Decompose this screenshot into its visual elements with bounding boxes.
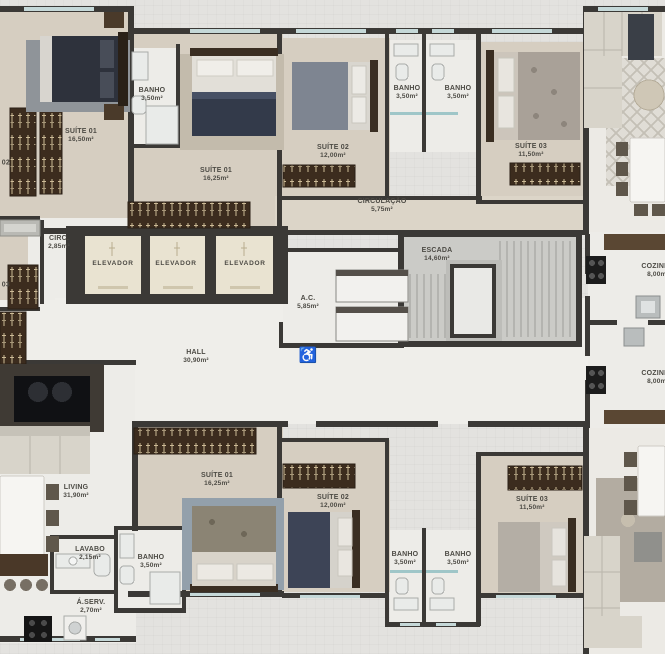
room-label-elevador-3: ELEVADOR [224, 260, 265, 268]
room-label-banho-bottom-left: BANHO3,50m² [138, 553, 165, 571]
floor-plan: SUÍTE 0116,50m²BANHO3,50m²SUÍTE 0116,25m… [0, 0, 665, 654]
room-label-suite-02-top-mid: SUÍTE 0212,00m² [317, 143, 349, 161]
room-label-area-servico: Á.SERV.2,70m² [77, 598, 106, 616]
room-label-living: LIVING31,90m² [63, 483, 89, 501]
room-label-banho-bottom-2: BANHO3,50m² [445, 550, 472, 568]
room-labels-layer: SUÍTE 0116,50m²BANHO3,50m²SUÍTE 0116,25m… [0, 0, 665, 654]
room-label-escada: ESCADA14,60m² [422, 246, 453, 264]
room-label-suite-02-left-edge: SUÍTE 02 [0, 158, 10, 167]
room-label-cozinha-2: COZINHA8,00m² [641, 369, 665, 387]
room-label-elevador-1: ELEVADOR [92, 260, 133, 268]
room-label-circ: CIRC.2,85m² [48, 234, 70, 252]
room-label-ac: A.C.5,85m² [297, 294, 319, 312]
room-label-banho-top-1: BANHO3,50m² [394, 84, 421, 102]
room-label-suite-01-top-left: SUÍTE 0116,50m² [65, 127, 97, 145]
room-label-elevador-2: ELEVADOR [155, 260, 196, 268]
room-label-cozinha-1: COZINHA8,00m² [641, 262, 665, 280]
room-label-suite-02-bottom: SUÍTE 0212,00m² [317, 493, 349, 511]
room-label-circulacao: CIRCULAÇÃO5,75m² [357, 197, 406, 215]
room-label-lavabo: LAVABO2,15m² [75, 545, 105, 563]
room-label-banho-bottom-1: BANHO3,50m² [392, 550, 419, 568]
room-label-banho-top-left: BANHO3,50m² [139, 86, 166, 104]
room-label-suite-03-bottom: SUÍTE 0311,50m² [516, 495, 548, 513]
room-label-suite-03-left-edge: SUÍTE 03 [0, 280, 10, 289]
room-label-suite-01-top-mid: SUÍTE 0116,25m² [200, 166, 232, 184]
room-label-banho-top-2: BANHO3,50m² [445, 84, 472, 102]
room-label-suite-03-top: SUÍTE 0311,50m² [515, 142, 547, 160]
room-label-hall: HALL30,90m² [183, 348, 209, 366]
room-label-suite-01-bottom: SUÍTE 0116,25m² [201, 471, 233, 489]
